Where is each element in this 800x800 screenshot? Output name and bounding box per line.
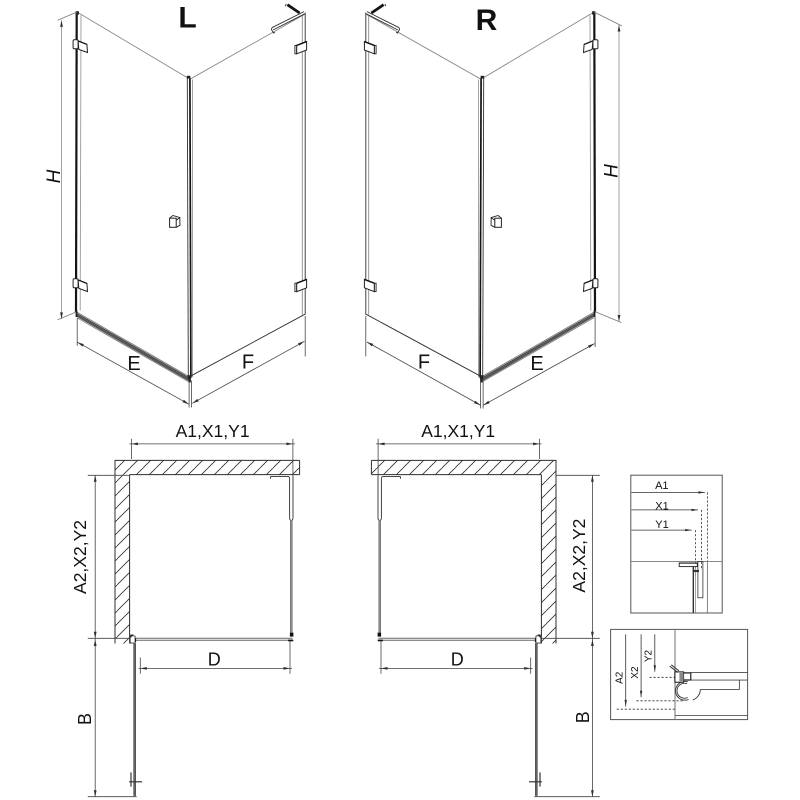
svg-text:A2: A2 — [615, 671, 626, 684]
svg-text:X2: X2 — [630, 666, 641, 679]
svg-text:H: H — [602, 164, 623, 178]
svg-text:H: H — [44, 169, 65, 183]
svg-text:D: D — [451, 649, 464, 669]
svg-text:F: F — [242, 351, 254, 373]
svg-text:B: B — [75, 713, 95, 725]
svg-text:A2,X2,Y2: A2,X2,Y2 — [70, 520, 90, 594]
svg-text:E: E — [127, 353, 140, 375]
svg-text:A1,X1,Y1: A1,X1,Y1 — [176, 421, 250, 441]
svg-text:A1,X1,Y1: A1,X1,Y1 — [421, 421, 495, 441]
svg-text:A2,X2,Y2: A2,X2,Y2 — [569, 519, 589, 593]
svg-text:F: F — [418, 351, 430, 373]
svg-text:X1: X1 — [655, 500, 668, 512]
svg-text:A1: A1 — [655, 480, 668, 492]
svg-text:R: R — [476, 4, 498, 37]
svg-text:D: D — [208, 649, 221, 669]
svg-text:L: L — [178, 1, 196, 34]
svg-text:Y2: Y2 — [644, 649, 655, 662]
svg-text:E: E — [530, 353, 543, 375]
svg-text:B: B — [573, 711, 593, 723]
svg-text:Y1: Y1 — [655, 519, 668, 531]
